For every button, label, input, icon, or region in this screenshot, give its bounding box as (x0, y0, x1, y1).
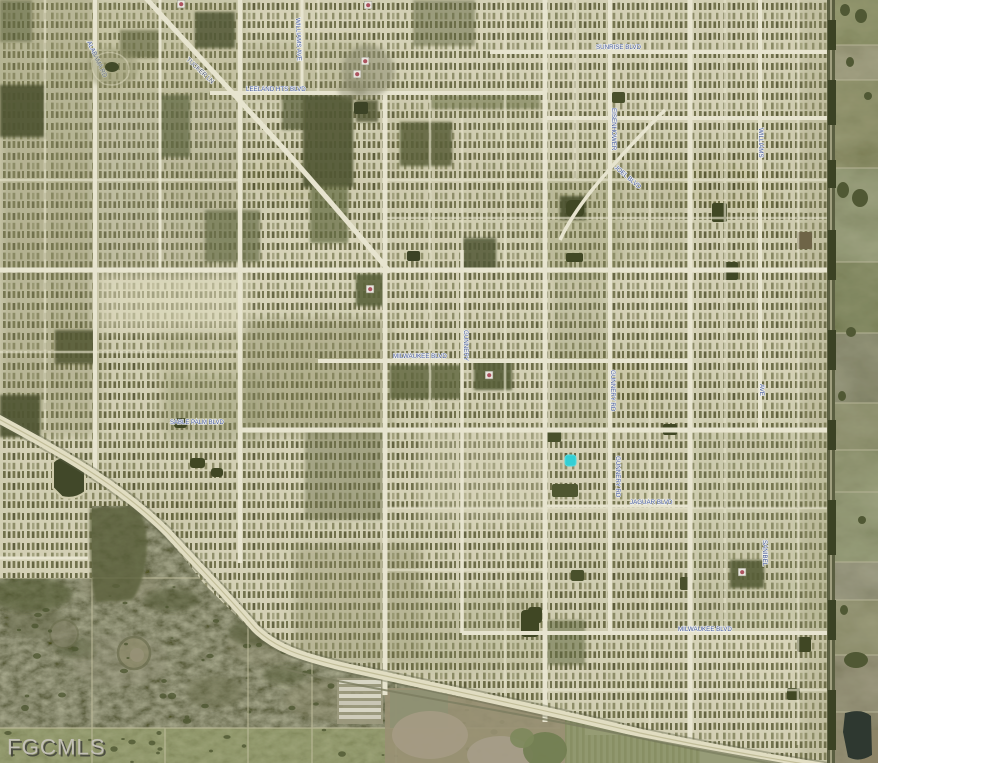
svg-text:FGCMLS: FGCMLS (7, 735, 106, 760)
